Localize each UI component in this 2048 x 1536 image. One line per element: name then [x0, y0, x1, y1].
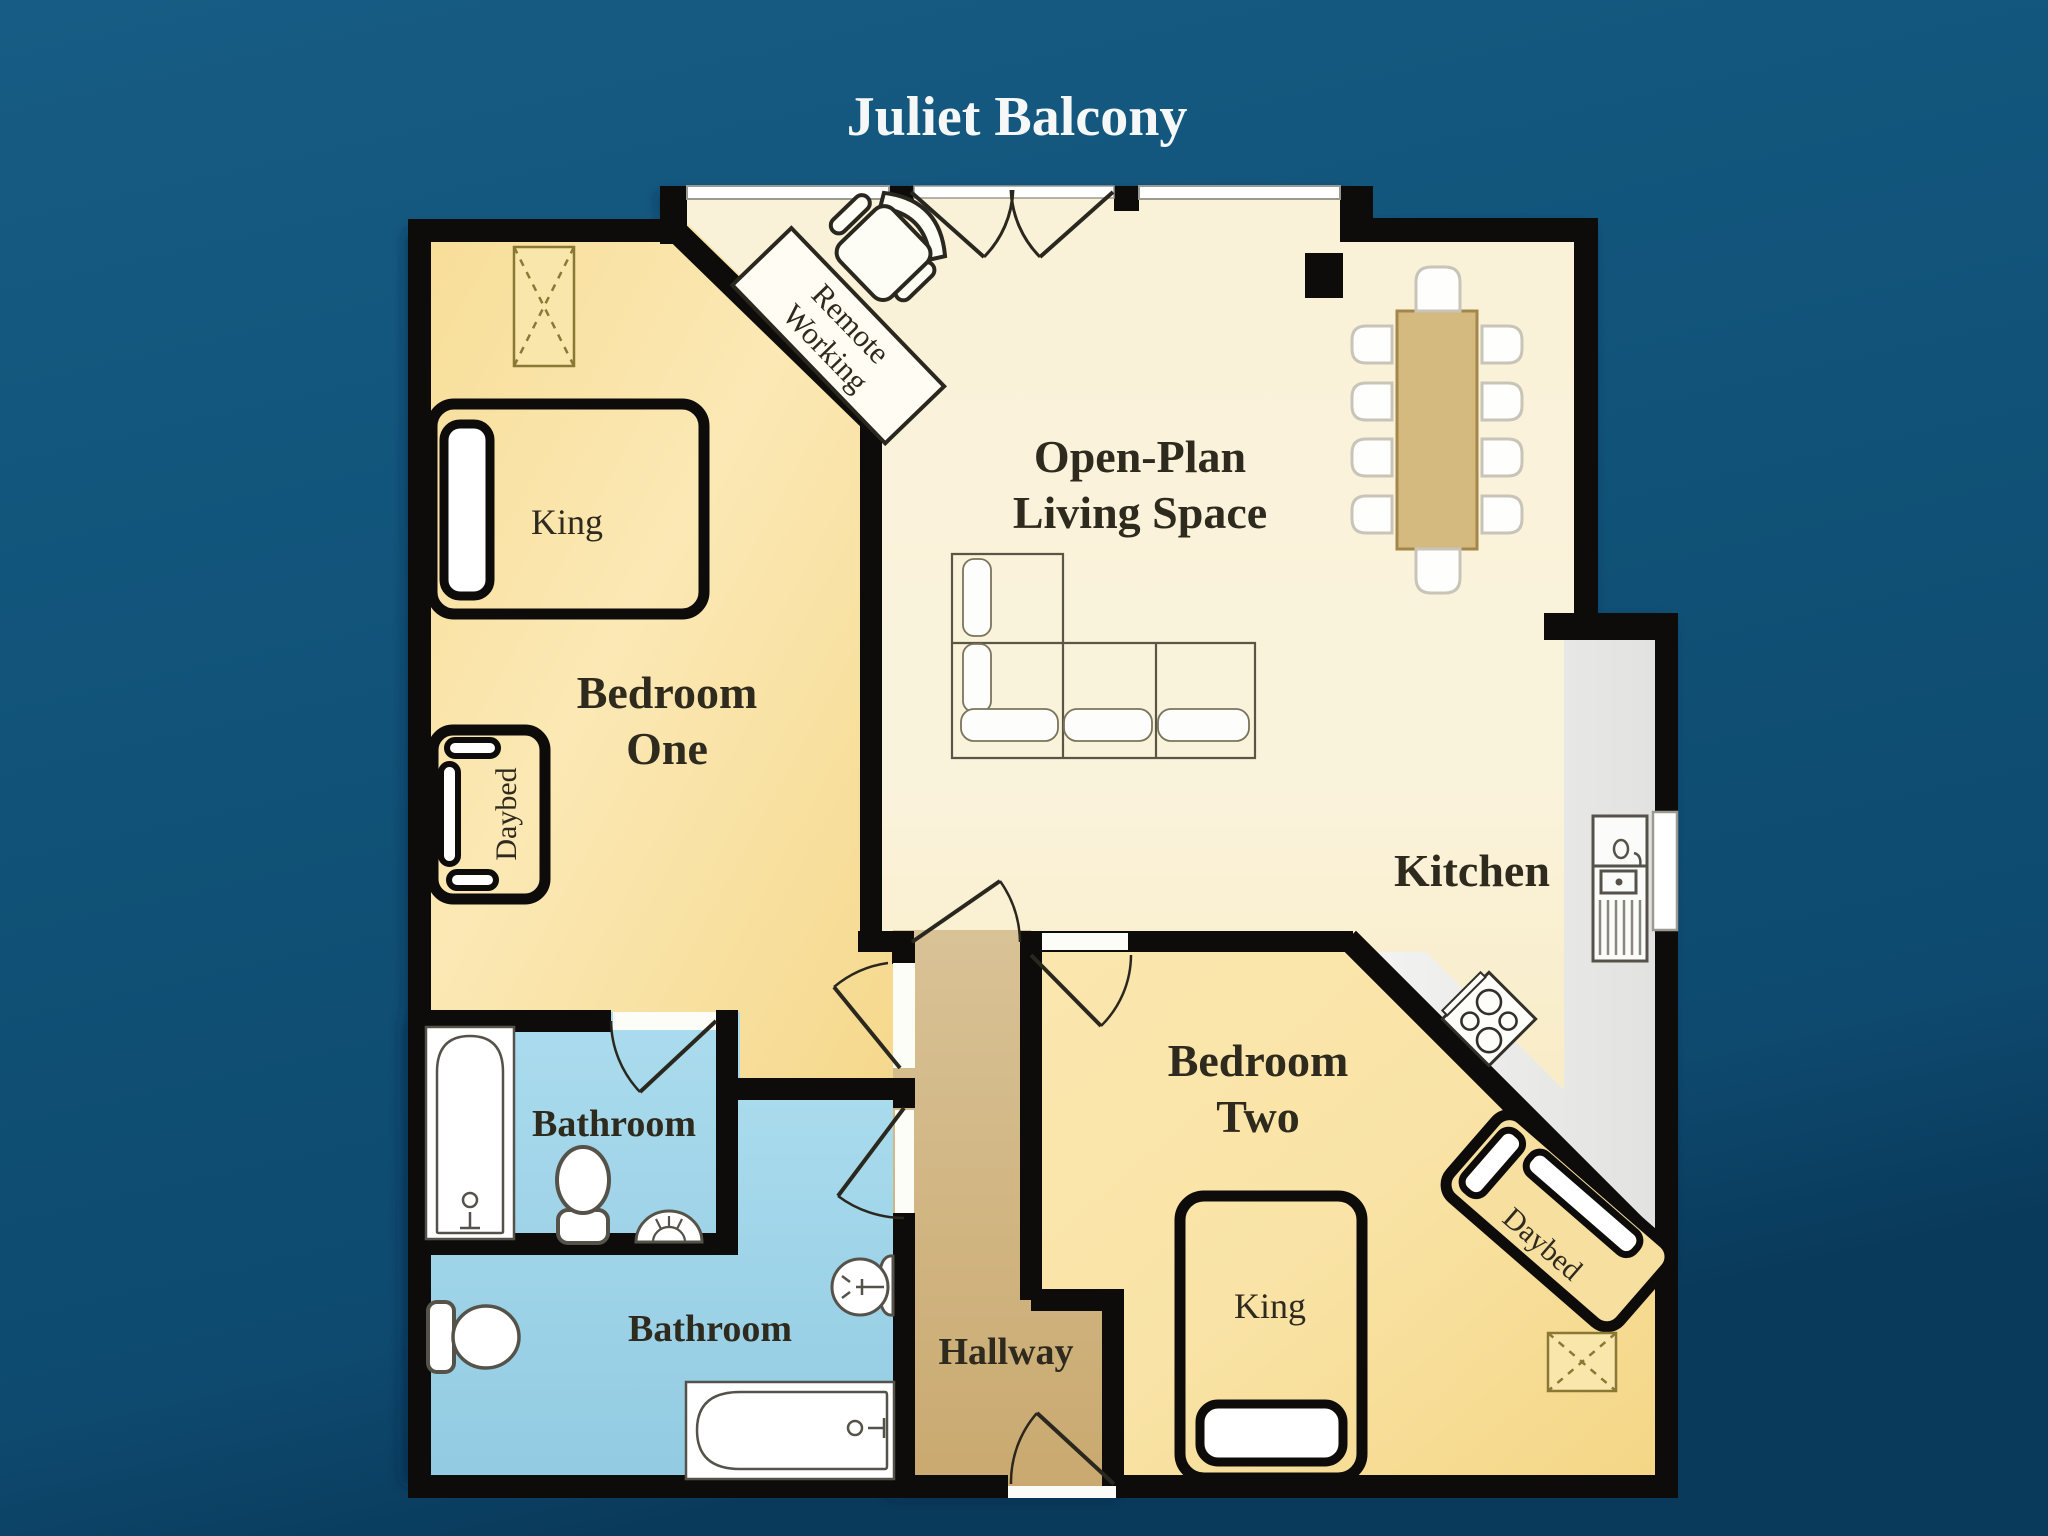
svg-text:Juliet Balcony: Juliet Balcony [847, 86, 1188, 148]
svg-text:King: King [1234, 1286, 1306, 1326]
svg-text:Bathroom: Bathroom [628, 1308, 792, 1350]
svg-text:Bedroom: Bedroom [577, 667, 758, 718]
svg-text:Bathroom: Bathroom [532, 1103, 696, 1145]
svg-text:Kitchen: Kitchen [1394, 845, 1550, 896]
svg-text:King: King [531, 502, 603, 542]
svg-text:One: One [626, 723, 708, 774]
svg-text:Hallway: Hallway [938, 1331, 1073, 1373]
svg-text:Open-Plan: Open-Plan [1034, 431, 1246, 482]
svg-text:Daybed: Daybed [490, 767, 523, 860]
svg-text:Two: Two [1216, 1091, 1300, 1142]
svg-text:Living Space: Living Space [1013, 487, 1267, 538]
svg-text:Bedroom: Bedroom [1168, 1035, 1349, 1086]
